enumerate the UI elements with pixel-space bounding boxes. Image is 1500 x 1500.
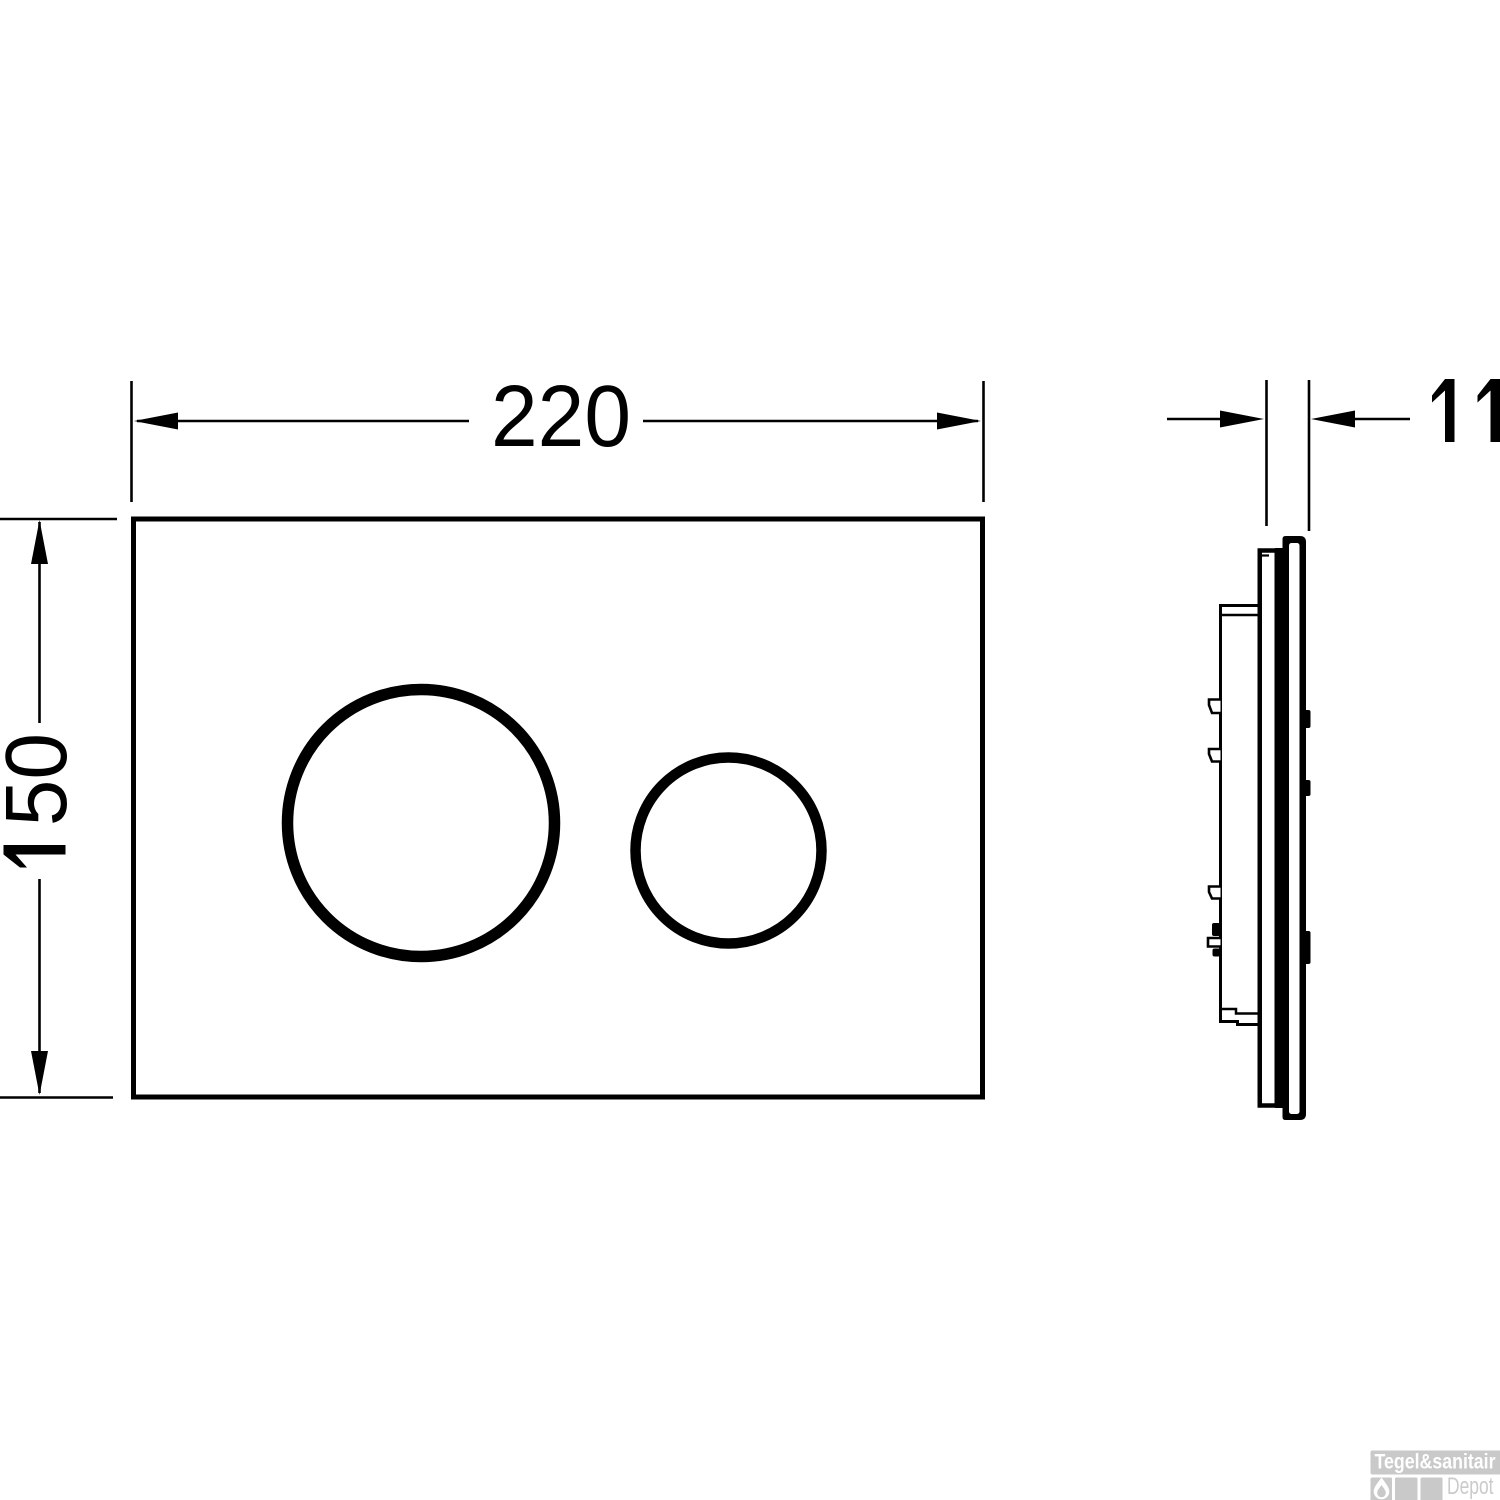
svg-text:Tegel&sanitair: Tegel&sanitair — [1375, 1450, 1497, 1474]
svg-text:50: 50 — [0, 733, 85, 826]
svg-text:Depot: Depot — [1447, 1473, 1494, 1500]
svg-text:220: 220 — [491, 368, 631, 465]
